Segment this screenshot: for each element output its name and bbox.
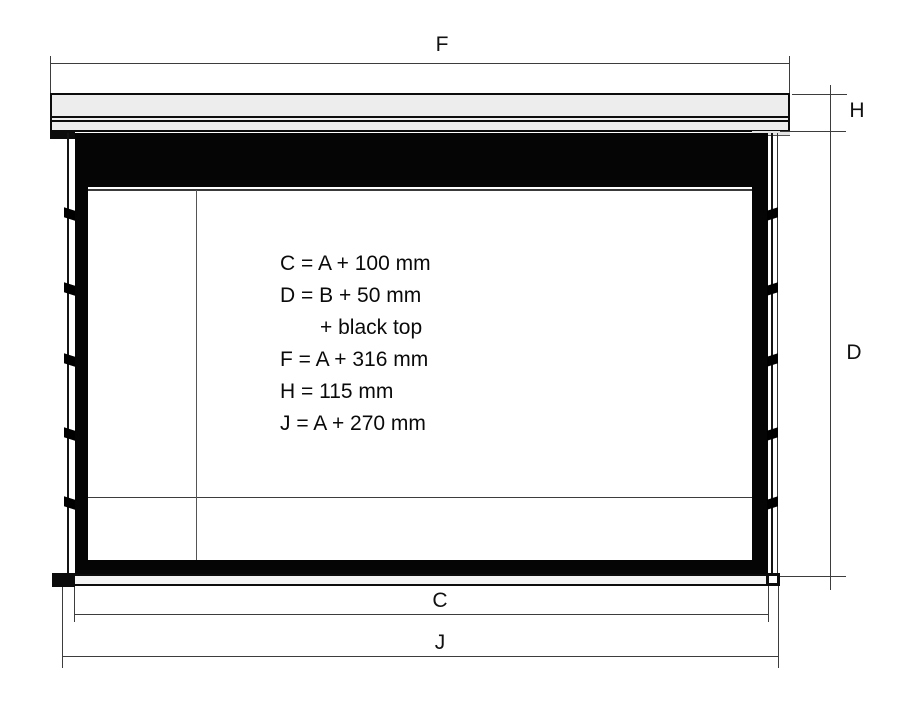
dim-f-extension-right <box>789 56 790 94</box>
dim-h-extension-bottom <box>780 131 846 132</box>
bottom-slat-cap-right <box>766 573 780 586</box>
viewing-area-top-edge <box>88 189 752 191</box>
dim-h-extension-top <box>792 94 847 95</box>
tension-tab <box>64 353 75 367</box>
formula-j: J = A + 270 mm <box>280 408 431 440</box>
formula-f: F = A + 316 mm <box>280 344 431 376</box>
dim-label-h: H <box>845 100 869 122</box>
formula-h: H = 115 mm <box>280 376 431 408</box>
formula-d-black-top: + black top <box>280 312 431 344</box>
tension-tab <box>64 282 75 296</box>
dim-label-f: F <box>430 34 454 56</box>
dim-b-line <box>196 190 197 560</box>
dim-f-line <box>50 63 790 64</box>
dim-c-line <box>74 614 769 615</box>
dim-a-line <box>88 497 752 498</box>
tension-tab <box>64 427 75 441</box>
dim-d-line <box>830 85 831 590</box>
dim-j-line <box>62 656 779 657</box>
housing-slot-line-lower <box>52 120 788 122</box>
tension-tab <box>64 207 75 221</box>
tension-tab <box>64 496 75 510</box>
formula-c: C = A + 100 mm <box>280 248 431 280</box>
bottom-slat <box>52 574 780 586</box>
housing-end-bracket-left <box>50 130 75 139</box>
dim-label-d: D <box>842 342 866 364</box>
screen-dimension-diagram: F A B H D C J C = <box>0 0 900 723</box>
dim-j-extension-right <box>778 577 779 668</box>
bottom-slat-cap-left <box>52 573 75 587</box>
dim-f-extension-left <box>50 56 51 94</box>
dim-j-extension-left <box>62 584 63 668</box>
dim-label-c: C <box>428 590 452 612</box>
housing-slot-line-upper <box>52 116 788 118</box>
screen-housing <box>50 93 790 132</box>
formula-d: D = B + 50 mm <box>280 280 431 312</box>
dim-label-j: J <box>428 632 452 654</box>
dim-d-extension-bottom <box>780 576 846 577</box>
formula-block: C = A + 100 mm D = B + 50 mm + black top… <box>280 248 431 440</box>
